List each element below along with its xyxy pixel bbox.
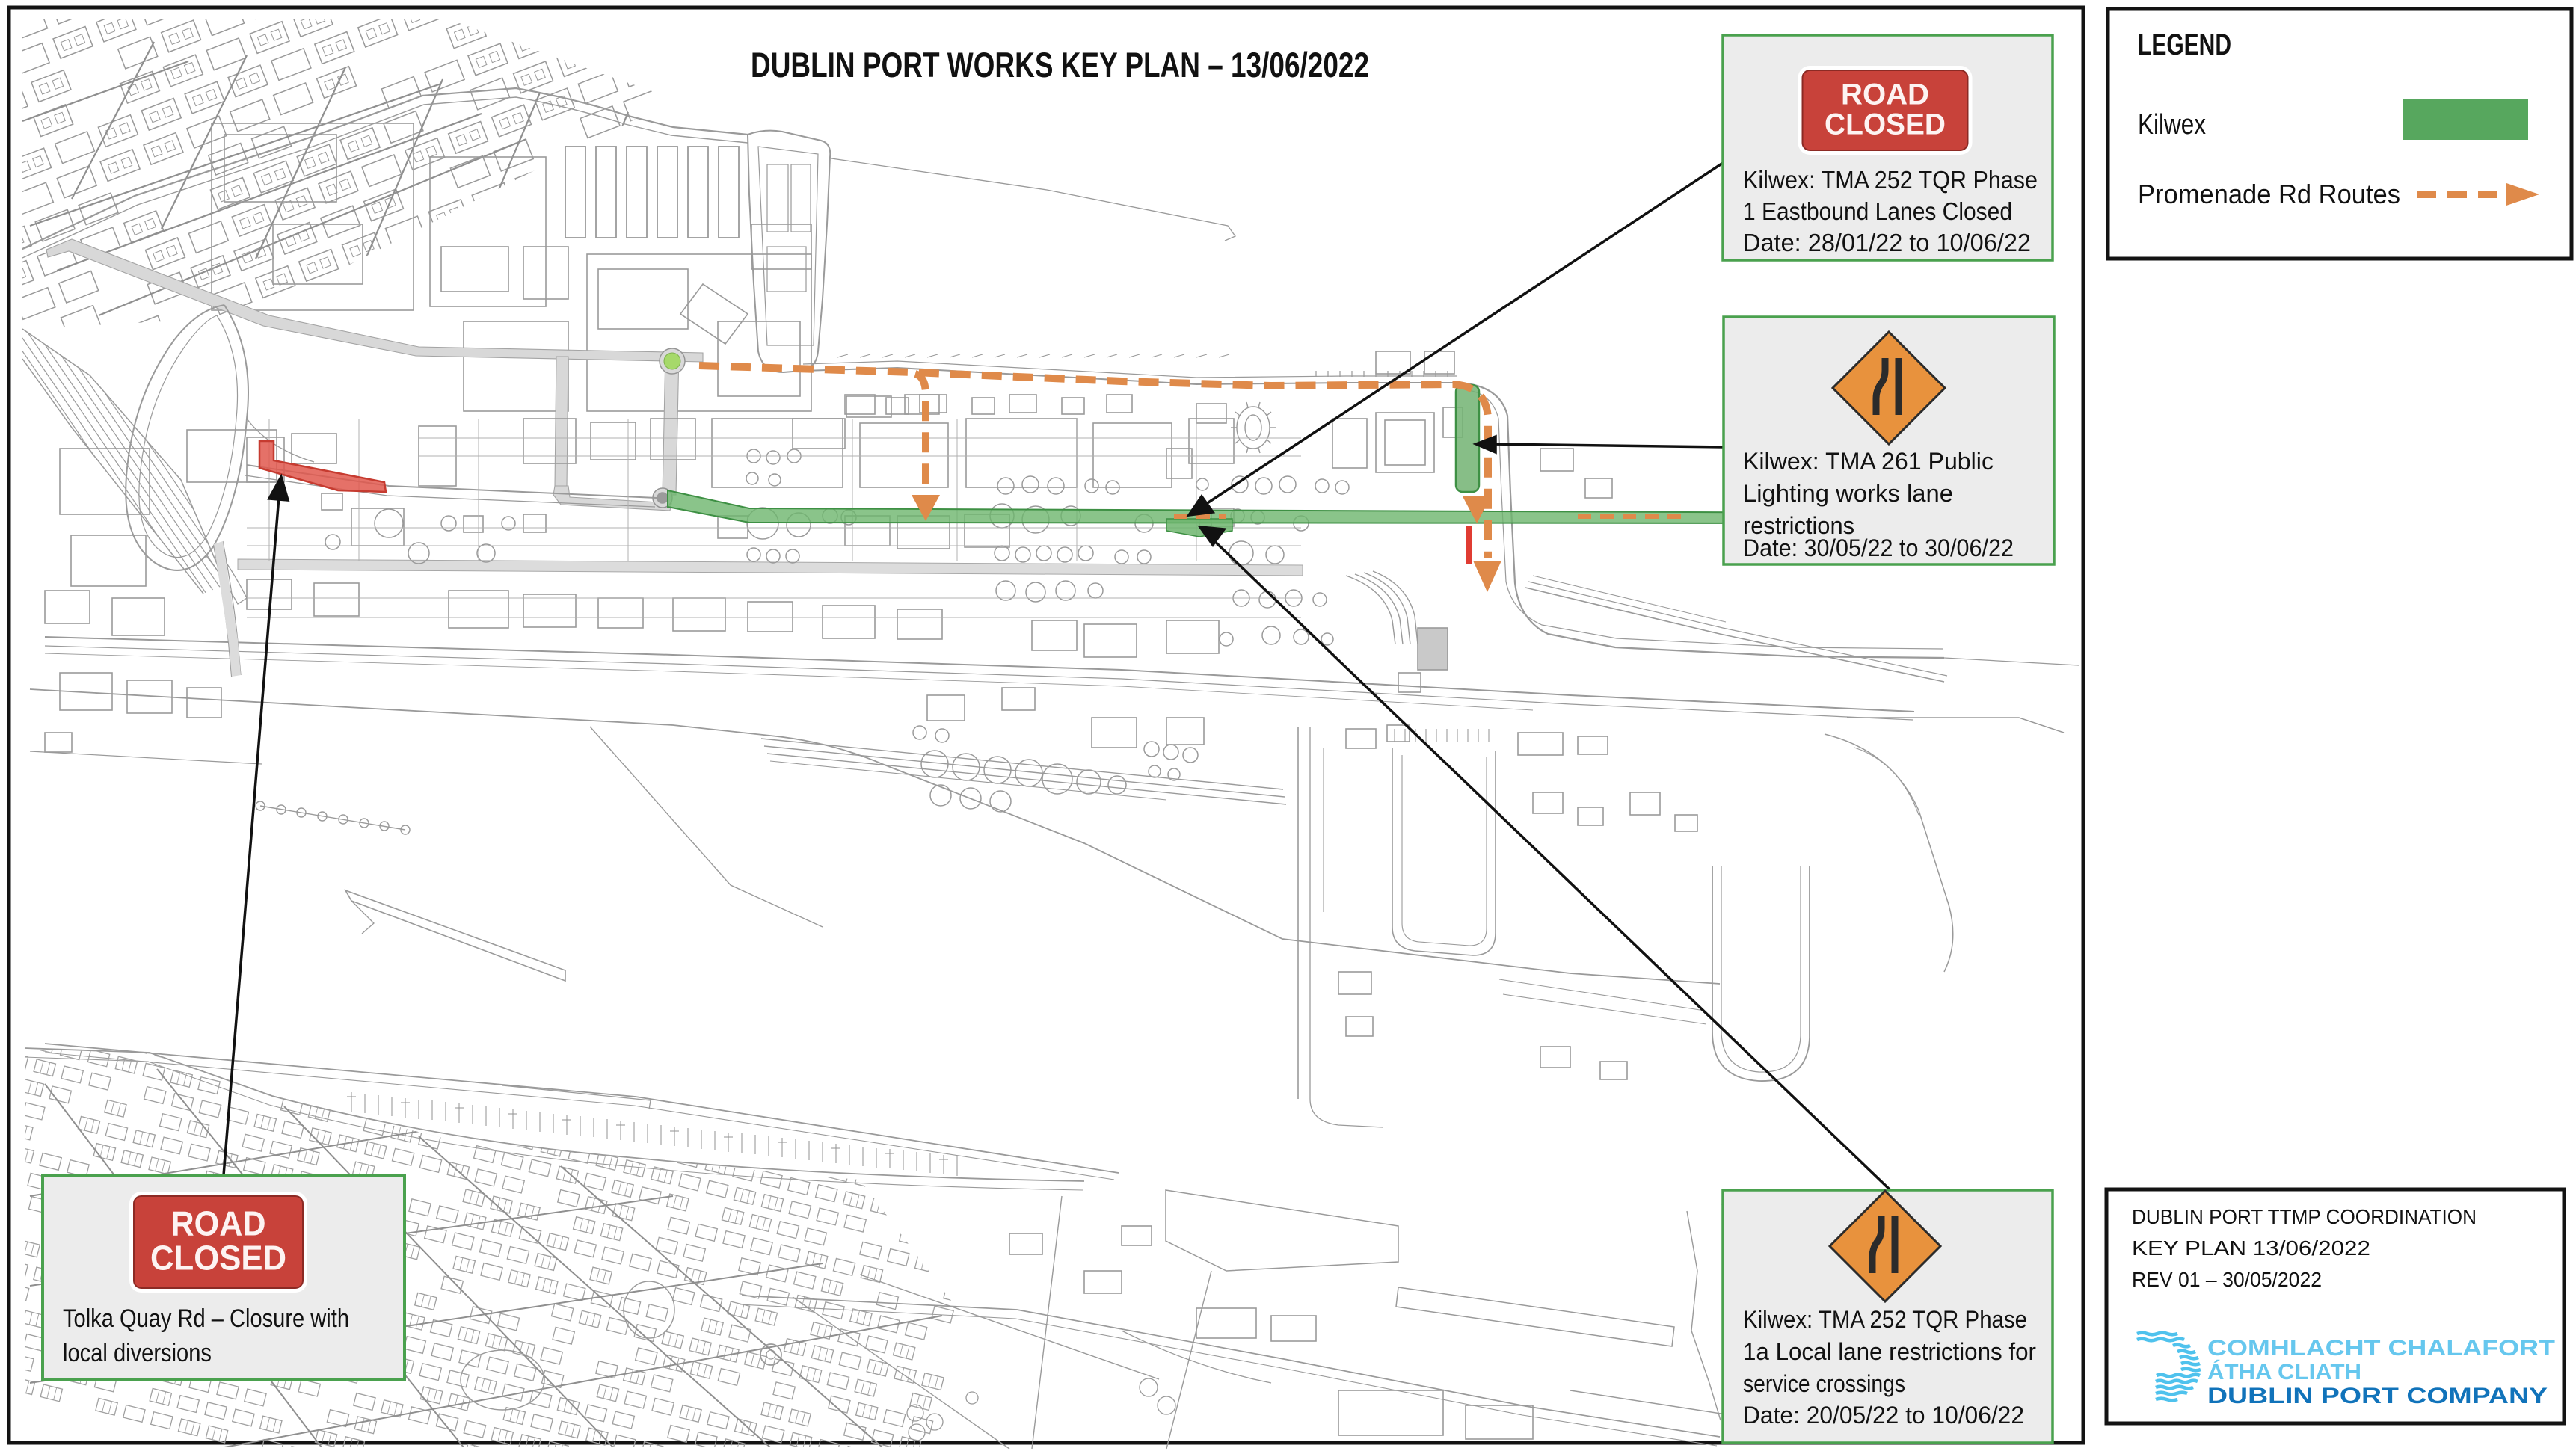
svg-text:Kilwex: TMA 261 Public: Kilwex: TMA 261 Public [1743,448,1994,475]
svg-text:1 Eastbound Lanes Closed: 1 Eastbound Lanes Closed [1743,197,2012,225]
svg-text:ÁTHA CLIATH: ÁTHA CLIATH [2207,1359,2361,1384]
svg-text:Lighting works lane: Lighting works lane [1743,480,1953,507]
svg-text:Date: 30/05/22 to 30/06/22: Date: 30/05/22 to 30/06/22 [1743,535,2014,561]
svg-text:Date: 28/01/22 to 10/06/22: Date: 28/01/22 to 10/06/22 [1743,229,2031,256]
svg-text:ROAD: ROAD [1841,78,1929,111]
svg-text:COMHLACHT CHALAFORT: COMHLACHT CHALAFORT [2207,1336,2555,1361]
svg-text:REV 01 – 30/05/2022: REV 01 – 30/05/2022 [2132,1268,2322,1291]
svg-text:KEY PLAN 13/06/2022: KEY PLAN 13/06/2022 [2132,1236,2370,1260]
svg-text:Date: 20/05/22 to 10/06/22: Date: 20/05/22 to 10/06/22 [1743,1402,2024,1429]
svg-text:LEGEND: LEGEND [2138,28,2231,61]
svg-text:service crossings: service crossings [1743,1370,1905,1397]
svg-text:Promenade Rd Routes: Promenade Rd Routes [2138,179,2400,209]
svg-text:DUBLIN PORT WORKS KEY PLAN – 1: DUBLIN PORT WORKS KEY PLAN – 13/06/2022 [751,45,1369,84]
svg-text:local diversions: local diversions [63,1339,212,1367]
svg-text:1a Local lane restrictions for: 1a Local lane restrictions for [1743,1338,2036,1365]
svg-text:DUBLIN PORT TTMP COORDINATION: DUBLIN PORT TTMP COORDINATION [2132,1205,2477,1228]
svg-text:CLOSED: CLOSED [1825,108,1946,141]
svg-text:Tolka Quay Rd – Closure with: Tolka Quay Rd – Closure with [63,1304,349,1333]
svg-text:CLOSED: CLOSED [150,1238,286,1277]
svg-text:Kilwex: Kilwex [2138,109,2206,141]
svg-text:Kilwex: TMA 252 TQR Phase: Kilwex: TMA 252 TQR Phase [1743,1306,2027,1333]
svg-text:ROAD: ROAD [171,1204,266,1242]
svg-text:DUBLIN PORT COMPANY: DUBLIN PORT COMPANY [2207,1384,2548,1408]
svg-text:Kilwex: TMA 252 TQR Phase: Kilwex: TMA 252 TQR Phase [1743,166,2038,194]
